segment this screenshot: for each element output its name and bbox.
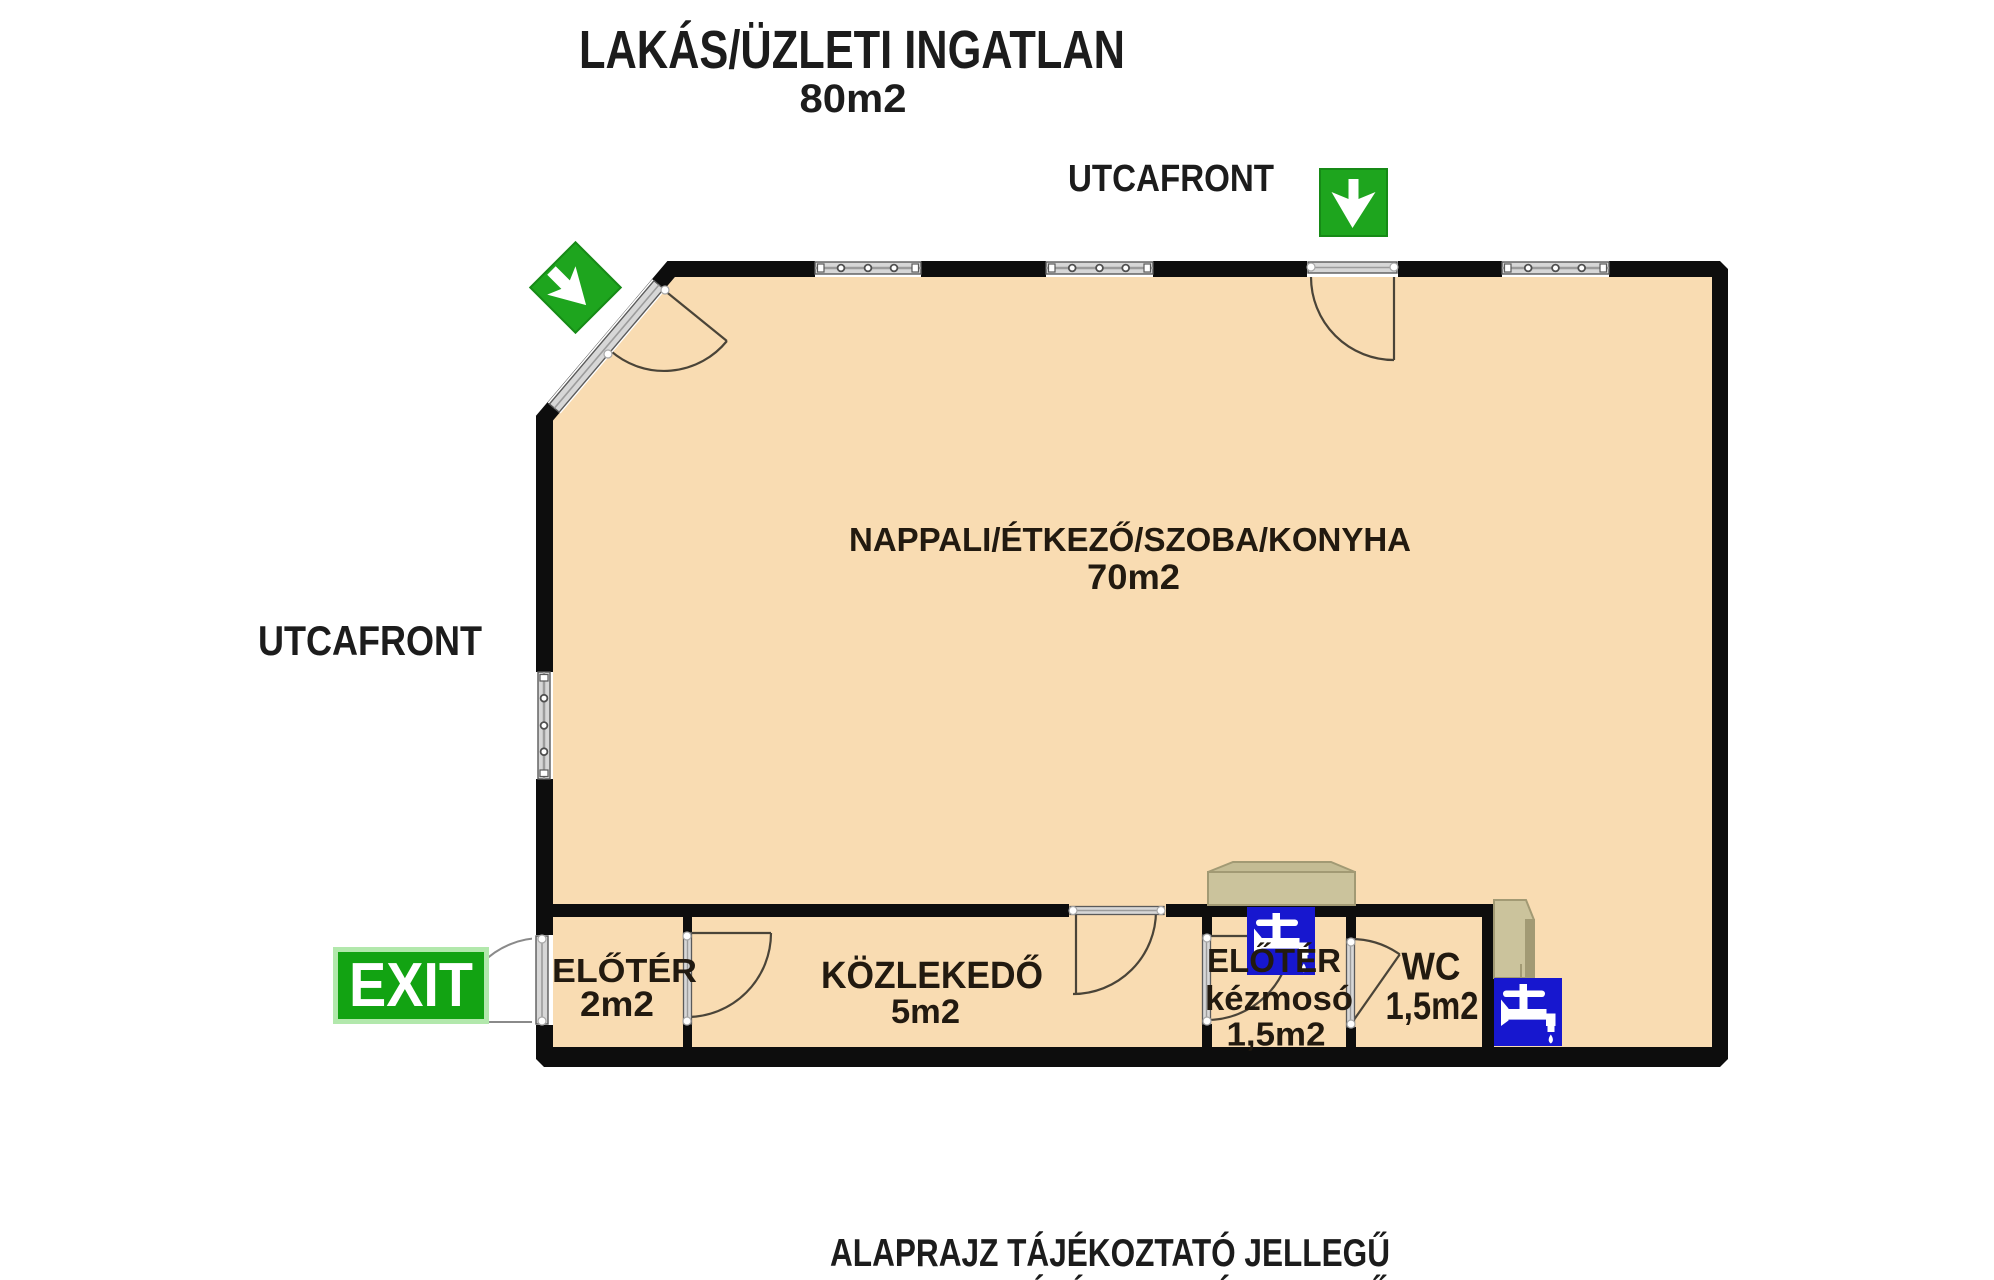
svg-text:1,5m2: 1,5m2: [1386, 985, 1479, 1028]
svg-text:LAKÁS/ÜZLETI INGATLAN: LAKÁS/ÜZLETI INGATLAN: [579, 20, 1125, 80]
svg-text:1,5m2: 1,5m2: [1227, 1017, 1326, 1054]
svg-text:KÖZLEKEDŐ: KÖZLEKEDŐ: [821, 953, 1043, 997]
svg-text:2m2: 2m2: [580, 985, 654, 1024]
svg-text:5m2: 5m2: [891, 993, 960, 1031]
svg-text:EXIT: EXIT: [349, 951, 473, 1020]
svg-text:ELŐTÉR: ELŐTÉR: [1207, 942, 1341, 980]
svg-text:UTCAFRONT: UTCAFRONT: [258, 617, 482, 664]
svg-text:UTCAFRONT: UTCAFRONT: [1068, 158, 1274, 200]
svg-text:WC: WC: [1402, 946, 1461, 989]
svg-text:kézmosó: kézmosó: [1205, 980, 1353, 1018]
svg-text:80m2: 80m2: [800, 77, 907, 121]
svg-text:ALAPRAJZ TÁJÉKOZTATÓ JELLEGŰ: ALAPRAJZ TÁJÉKOZTATÓ JELLEGŰ: [830, 1231, 1390, 1275]
svg-text:70m2: 70m2: [1087, 558, 1180, 597]
svg-text:ALAPRAJZ TÁJÉKOZTATÓ JELLEGŰ: ALAPRAJZ TÁJÉKOZTATÓ JELLEGŰ: [830, 1274, 1390, 1280]
svg-text:NAPPALI/ÉTKEZŐ/SZOBA/KONYHA: NAPPALI/ÉTKEZŐ/SZOBA/KONYHA: [849, 521, 1411, 559]
